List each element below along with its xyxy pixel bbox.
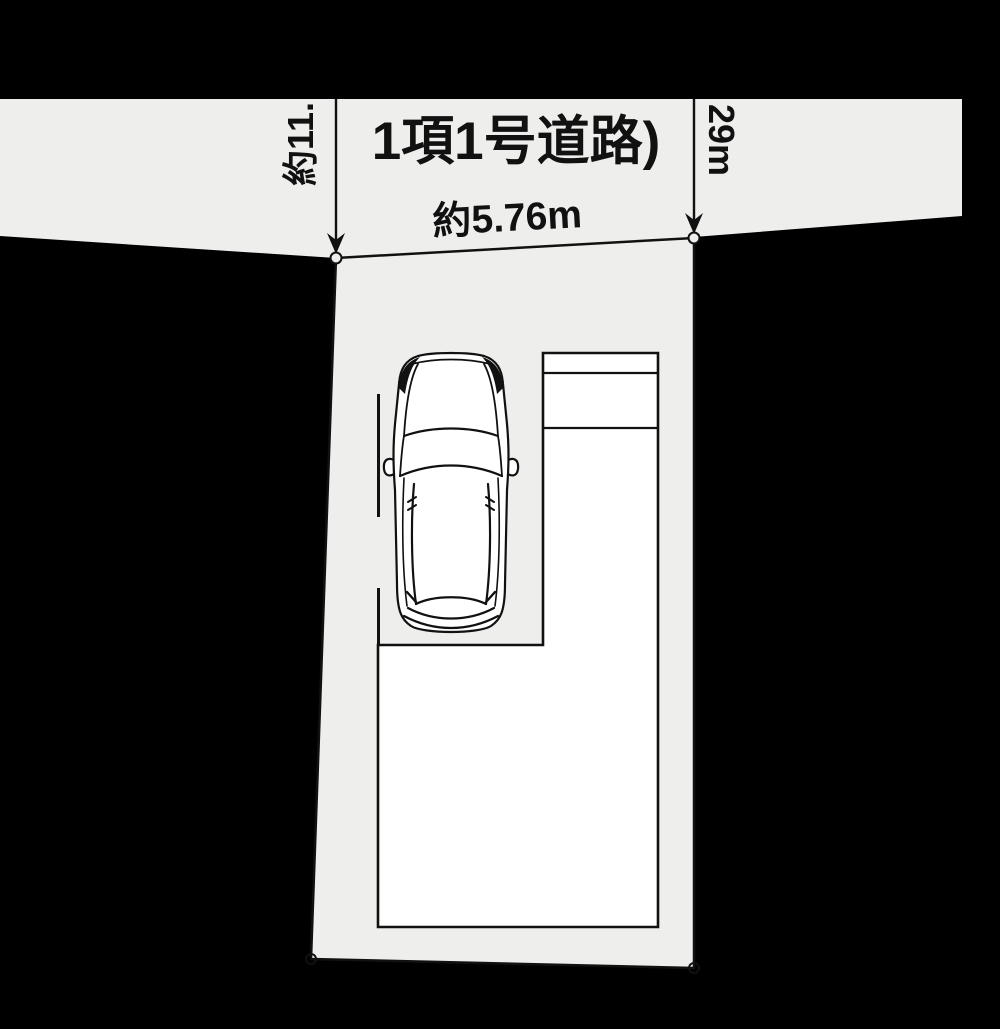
boundary-point-marker — [689, 233, 700, 244]
car-top-view-icon — [384, 353, 518, 632]
site-plan-svg — [0, 0, 1000, 1029]
boundary-point-marker — [331, 253, 342, 264]
road-area — [0, 99, 962, 258]
site-plan-diagram: 1項1号道路) 約5.76m 約11. 29m — [0, 0, 1000, 1029]
